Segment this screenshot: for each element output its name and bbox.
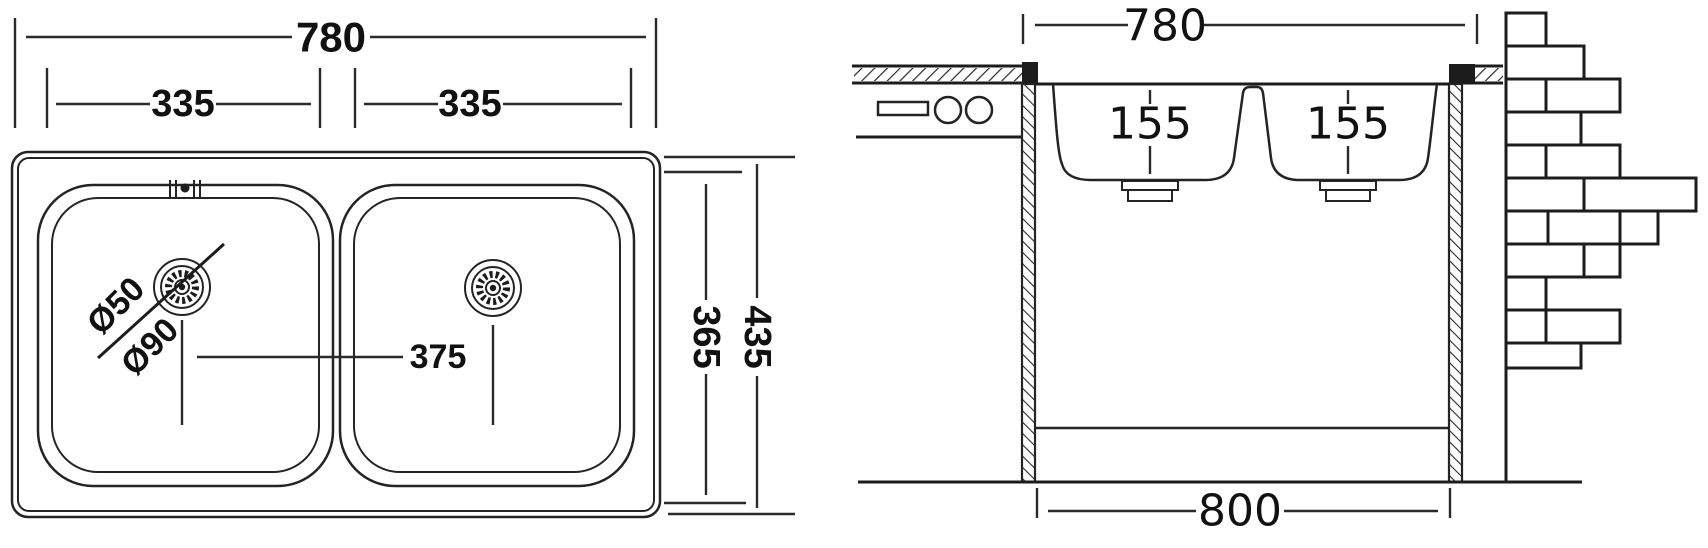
section-view: 155 155 780 800 bbox=[852, 1, 1696, 537]
dim-sink-width-section: 780 bbox=[1023, 1, 1477, 52]
dim-right-bowl-depth: 155 bbox=[1306, 90, 1390, 174]
dim-right-bowl-width: 335 bbox=[355, 68, 631, 128]
dim-800-label: 800 bbox=[1198, 486, 1282, 537]
appliance-knob-right bbox=[966, 97, 992, 123]
dim-left-bowl-depth: 155 bbox=[1108, 90, 1192, 174]
dim-780-section-label: 780 bbox=[1123, 1, 1207, 52]
appliance-knob-left bbox=[935, 97, 961, 123]
sink-drawing: Ø50 Ø90 375 780 335 bbox=[0, 0, 1708, 548]
dim-375-label: 375 bbox=[410, 338, 467, 376]
brick-wall bbox=[1506, 13, 1696, 482]
left-drain-icon bbox=[154, 259, 210, 315]
dim-drain-spacing: 375 bbox=[182, 320, 493, 425]
cabinet-right-post bbox=[1449, 64, 1475, 482]
right-drain-icon bbox=[465, 260, 521, 316]
cabinet-left-post bbox=[1022, 84, 1035, 482]
dim-cabinet-width: 800 bbox=[1037, 486, 1450, 537]
faucet-hole-icon bbox=[170, 180, 200, 198]
right-bowl bbox=[340, 185, 634, 486]
appliance-front bbox=[856, 97, 1022, 137]
dim-bowl-depth: 365 bbox=[664, 172, 746, 503]
dim-overall-width: 780 bbox=[15, 14, 656, 129]
technical-drawing-canvas: Ø50 Ø90 375 780 335 bbox=[0, 0, 1708, 548]
dim-overall-depth: 435 bbox=[664, 157, 795, 514]
top-view: Ø50 Ø90 375 780 335 bbox=[12, 14, 795, 518]
left-bowl bbox=[38, 185, 333, 486]
countertop-left bbox=[852, 62, 1038, 84]
dim-335-left-label: 335 bbox=[151, 83, 214, 125]
dim-left-bowl-width: 335 bbox=[47, 68, 320, 128]
dim-435-label: 435 bbox=[736, 305, 778, 368]
counter-corner-block bbox=[1022, 62, 1038, 84]
dim-335-right-label: 335 bbox=[438, 83, 501, 125]
appliance-handle bbox=[878, 102, 928, 115]
dim-365-label: 365 bbox=[685, 305, 727, 368]
drain-diameter-callout: Ø50 Ø90 bbox=[80, 244, 224, 383]
dim-155-left-label: 155 bbox=[1108, 99, 1192, 150]
left-bowl-drain bbox=[1122, 181, 1178, 201]
dim-780-top-label: 780 bbox=[296, 14, 366, 61]
dim-155-right-label: 155 bbox=[1306, 99, 1390, 150]
right-bowl-drain bbox=[1320, 181, 1376, 201]
